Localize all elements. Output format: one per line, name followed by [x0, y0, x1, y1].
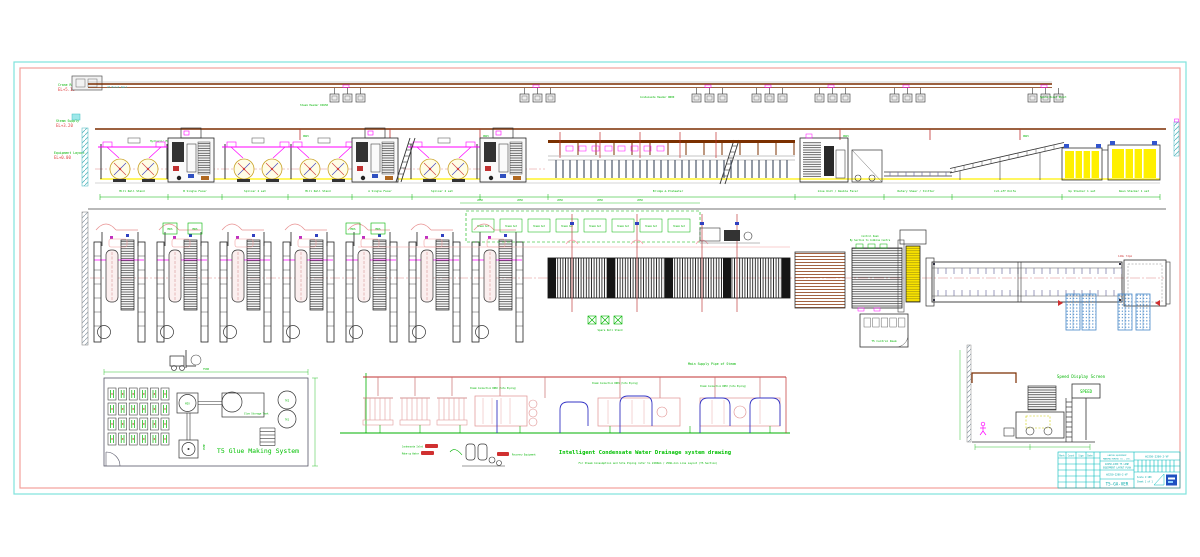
glue-room-title: T5 Glue Making System: [217, 447, 299, 455]
dim-label: 2050: [477, 199, 483, 202]
station-label: B Single Facer: [183, 189, 207, 193]
control-room-label: T5 Control Room: [871, 339, 897, 343]
plan-view: 2050 2050 2050 2050 2050 MRS MRS MRS MRS: [82, 199, 1170, 371]
dim-top: 7500: [203, 367, 210, 371]
down-stacker: [1108, 141, 1160, 180]
scale-label: Scale 1:100: [1137, 476, 1152, 479]
rev-header: Mark: [1059, 455, 1065, 458]
forklift: [170, 350, 201, 371]
control-desk-line1: Control Desk: [861, 235, 879, 238]
dim-label: 2050: [637, 199, 643, 202]
title-middle-column: CARTON EQUIPMENT MANUFACTURING CO., LTD.…: [1100, 454, 1134, 487]
support-bracket: [972, 373, 1016, 383]
speed-display-screen: SPEED: [1072, 384, 1100, 440]
support-column: [82, 128, 88, 186]
station-label: Down Stacker 1 set: [1119, 189, 1150, 193]
condensate-loops: [497, 396, 780, 433]
glue-cell-grid: [108, 388, 169, 445]
station-label: Splicer 2 set: [244, 189, 266, 193]
rotary-shear-plan: [795, 252, 845, 308]
steam-set-tag: Steam Set: [477, 225, 490, 228]
station-label: Cut-off Knife: [994, 189, 1016, 193]
access-ladder: [396, 138, 415, 182]
screen-text: SPEED: [1080, 389, 1093, 394]
rev-header: Date: [1087, 455, 1093, 458]
recovery-label: Make-up Water: [402, 453, 420, 456]
station-label: Rotary Shear / Slitter: [897, 189, 934, 193]
operator-figure: [980, 422, 986, 435]
mill-roll-stand: [98, 138, 170, 182]
elevation-labels: Crane Rail EL+5.15 Steam Supply EL+3.20 …: [54, 83, 85, 160]
station-label: Bridge & Preheater: [653, 189, 684, 193]
rev-header: Sign: [1078, 455, 1084, 458]
steam-set-tag: Steam Set: [617, 225, 630, 228]
station-labels: Mill Roll Stand B Single Facer Splicer 2…: [119, 189, 1149, 193]
pipe-label: Steam Connection DN80 (Site Piping): [470, 387, 516, 390]
steam-supply-rail: DN25 DN25 DN25 DN25: [95, 129, 1166, 140]
double-facer-entry: [800, 134, 882, 182]
right-dims: [975, 444, 1090, 450]
recovery-label: Recovery Equipment: [512, 454, 536, 457]
dim-label: 2050: [517, 199, 523, 202]
company-line2: MANUFACTURING CO., LTD.: [1103, 458, 1131, 461]
pipe-drop-label: DN25: [483, 135, 489, 138]
drawing-number-right: WJ250-2200-2-VF: [1145, 455, 1169, 459]
pallet-stack: [1066, 294, 1080, 330]
revision-grid: Mark Count Sign Date: [1058, 452, 1100, 488]
incline-conveyor: [950, 143, 1064, 181]
glue-pump: PUMP: [179, 440, 206, 458]
control-desk-note: Control Desk By Section to Combine Centr…: [850, 235, 891, 242]
plan-roll-stand: [220, 224, 271, 342]
roll-stand-tag: MRS: [350, 227, 355, 231]
steam-main-label: Main Supply Pipe of Steam: [688, 362, 736, 366]
station-label: Up Stacker 1 set: [1069, 189, 1096, 193]
cad-drawing-sheet: Crane Rail EL+5.15 Steam Supply EL+3.20 …: [0, 0, 1200, 557]
company-line1: CARTON EQUIPMENT: [1107, 454, 1127, 457]
roll-stand-tags: MRS MRS MRS MRS: [163, 223, 385, 234]
pipe-label: Steam Connection DN50 (Site Piping): [700, 385, 746, 388]
pallet-stack: [1136, 294, 1150, 330]
drawing-code: T5-GA-VER: [1106, 482, 1129, 487]
station-label: Mill Roll Stand: [305, 189, 331, 193]
mill-roll-stand: [408, 138, 480, 182]
speed-display-label: Speed Display Screen: [1057, 374, 1106, 379]
tank-label: TK1: [285, 419, 290, 422]
df-aux-cluster: [700, 228, 760, 243]
title-right-column: WJ250-2200-2-VF Scale 1:100 Sheet 1 of 1: [1134, 455, 1180, 486]
wall-section: [967, 345, 971, 442]
mill-roll-stand: [222, 138, 294, 182]
flow-arrow: [1155, 300, 1160, 306]
steam-set-tag: Steam Set: [645, 225, 658, 228]
tank-label: TK2: [285, 400, 290, 403]
exit-conveyor-plan: 14WL 72pm: [926, 254, 1132, 306]
pipe-label: Steam Connection DN65 (Site Piping): [592, 382, 638, 385]
single-facer-machine: [168, 128, 214, 182]
note-spare-hoist: Spare Hoist Point: [1040, 95, 1067, 99]
pipe-drop-label: DN25: [843, 135, 849, 138]
end-post: [1174, 119, 1179, 156]
plan-roll-stand: [283, 224, 334, 342]
speed-display-area: Speed Display Screen SPEED: [960, 345, 1106, 450]
mixer-label: MIX: [185, 402, 190, 406]
drawing-number: WJ250-2200-2-VF: [1106, 474, 1128, 477]
conveyor-note: 14WL 72pm: [1118, 254, 1132, 258]
door-swing: [106, 452, 120, 466]
recovery-unit: Condensate Inlet Make-up Water Recovery …: [402, 444, 537, 466]
plan-roll-stand: [346, 224, 397, 342]
up-stacker: [1062, 144, 1108, 180]
project-line2: EQUIPMENT LAYOUT PLAN: [1103, 467, 1131, 470]
rev-header: Count: [1068, 455, 1075, 458]
pump-label: PUMP: [203, 444, 206, 450]
holding-tanks: TK2 TK1: [278, 391, 296, 428]
sheet-label: Sheet 1 of 1: [1137, 481, 1153, 484]
pallet-stack: [1118, 294, 1132, 330]
bridge-section: [548, 132, 795, 178]
slitter-scorer-plan: [852, 244, 902, 311]
drawing-svg: Crane Rail EL+5.15 Steam Supply EL+3.20 …: [0, 0, 1200, 557]
station-label: Mill Roll Stand: [119, 189, 145, 193]
steam-user-groups: [363, 396, 780, 426]
mid-dimension-labels: 2050 2050 2050 2050 2050: [460, 199, 700, 203]
plan-roll-stand: [409, 224, 460, 342]
schematic-note: For Steam Consumption and Site Piping re…: [579, 461, 718, 465]
single-facer-machine: [352, 128, 398, 182]
plan-roll-stand: [157, 224, 208, 342]
roll-stand-tag: MRS: [375, 227, 380, 231]
elevation-view: 2T Hoist Rail Hydraulic Mill Roll Stand …: [72, 76, 1179, 200]
title-block: Mark Count Sign Date CARTON EQUIPMENT MA…: [1058, 452, 1180, 488]
double-facer-plan: [548, 214, 790, 312]
glue-storage-tank: Glue Storage Tank: [222, 392, 269, 417]
note-hoist-rail: 2T Hoist Rail: [107, 85, 128, 89]
note-condensate-header: Condensate Header DN80: [640, 95, 675, 99]
steam-set-tag: Steam Set: [589, 225, 602, 228]
elevation-code-equipment-layout: EL+0.00: [54, 155, 71, 160]
company-logo-icon: [1166, 475, 1177, 486]
steam-set-tag: Steam Set: [673, 225, 686, 228]
stairs: [260, 428, 275, 446]
schematic-title: Intelligent Condensate Water Drainage sy…: [559, 450, 731, 456]
note-steam-header: Steam Header DN150: [300, 103, 329, 107]
steam-set-tag: Steam Set: [533, 225, 546, 228]
station-label: Glue Unit / Double Facer: [818, 189, 859, 193]
dim-label: 2050: [597, 199, 603, 202]
overhead-crane-rail: [72, 76, 1052, 90]
elevation-code-steam-supply: EL+3.20: [56, 123, 73, 128]
roll-stand-tag: MRS: [192, 227, 197, 231]
logo-pennant-icon: [1154, 474, 1164, 485]
pipe-drop-label: DN25: [303, 135, 309, 138]
platform-ladder: [1066, 398, 1072, 442]
station-label: A Single Facer: [368, 189, 392, 193]
station-label: Splicer 2 set: [431, 189, 453, 193]
pallet-stack: [1082, 294, 1096, 330]
buffer-label: Spare Roll Stand: [598, 328, 623, 332]
glue-mixer: MIX: [177, 393, 198, 413]
exit-low-conveyor: [884, 172, 952, 176]
flow-arrow: [1058, 300, 1063, 306]
control-desk-line2: By Section to Combine Centre: [850, 239, 891, 242]
recovery-label: Condensate Inlet: [402, 446, 424, 449]
side-view-machine: [1004, 386, 1064, 438]
steam-set-tag: Steam Set: [505, 225, 518, 228]
condensate-schematic: Main Supply Pipe of Steam: [340, 362, 790, 466]
pipe-drop-label: DN25: [1023, 135, 1029, 138]
top-dimension-line: [100, 194, 1160, 200]
plan-roll-stand: [94, 224, 145, 342]
plan-wall: [82, 212, 88, 345]
spare-roll-buffer: Spare Roll Stand: [588, 316, 623, 332]
glue-making-room: MIX Glue Storage Tank TK2 TK1 PUMP: [104, 367, 318, 466]
roll-stand-tag: MRS: [167, 227, 172, 231]
dim-label: 2050: [557, 199, 563, 202]
storage-label: Glue Storage Tank: [244, 413, 269, 416]
control-room: T5 Control Room: [860, 314, 908, 347]
plan-steam-header: [109, 239, 790, 247]
mill-roll-stand: [288, 138, 360, 182]
steam-set-group: Steam Set Steam Set Steam Set Steam Set …: [466, 211, 700, 242]
